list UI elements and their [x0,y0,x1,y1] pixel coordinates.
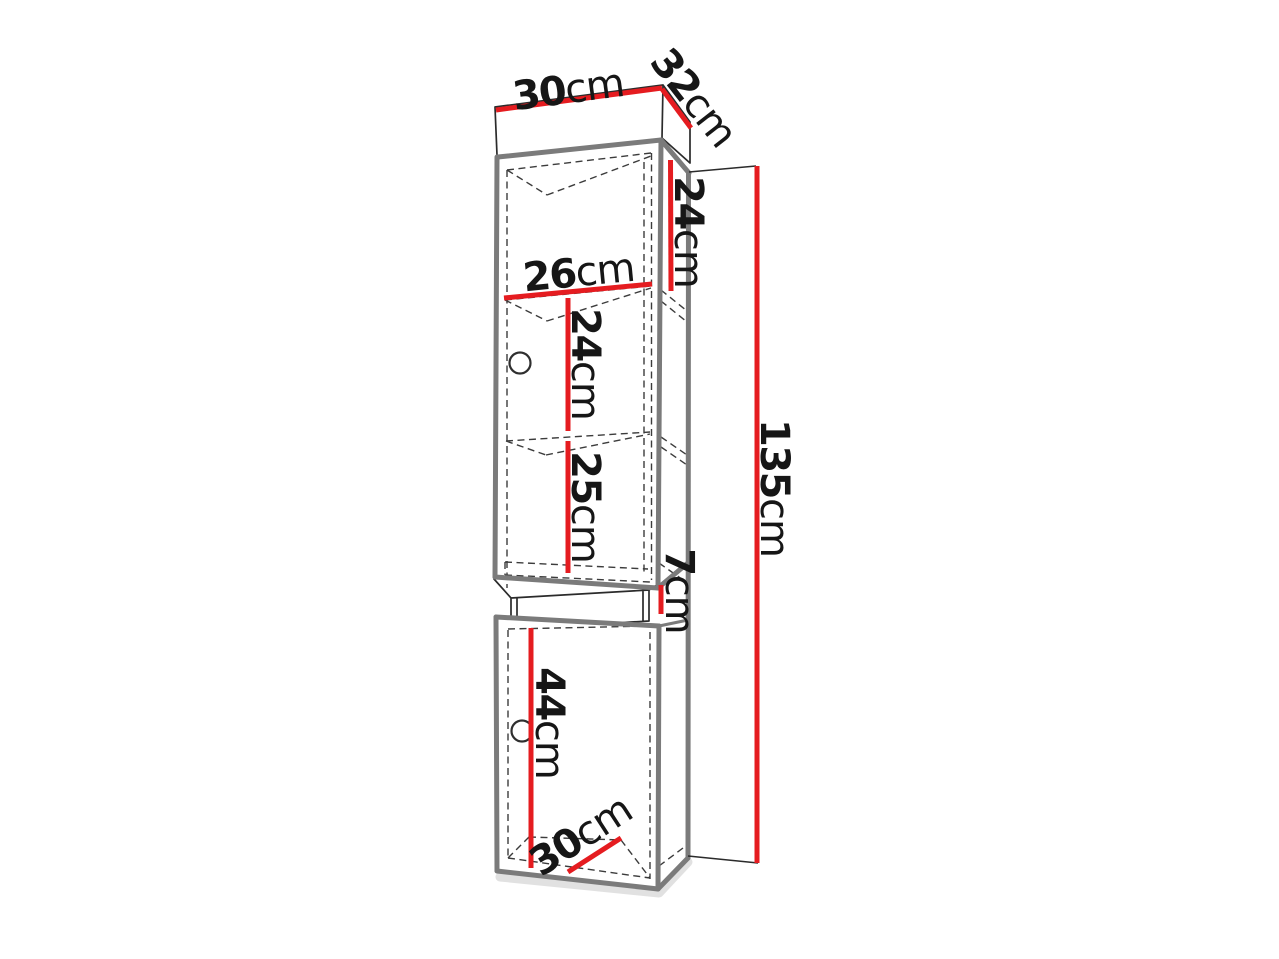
dim-label-total-height: 135cm [751,419,797,557]
diagram-canvas: 30cm 32cm 24cm 26cm 24cm 25cm 7cm 44cm 3… [0,0,1279,959]
dim-label-top-section-height: 24cm [665,176,711,288]
cabinet-dimension-diagram: 30cm 32cm 24cm 26cm 24cm 25cm 7cm 44cm 3… [0,0,1279,959]
height-extension-bottom [688,856,758,863]
lower-side-face [658,619,688,889]
lower-left-edge [496,617,497,871]
dim-label-middle-section-height: 24cm [562,308,608,420]
dim-label-lower-section-height: 25cm [562,451,608,563]
lower-front-right-edge [658,626,659,889]
upper-left-edge [495,157,497,577]
upper-front-right-edge [658,140,661,588]
height-extension-top [689,166,756,172]
dim-label-door-section-height: 44cm [526,667,572,779]
dim-label-niche-height: 7cm [656,548,702,633]
upper-door-knob [510,353,531,374]
